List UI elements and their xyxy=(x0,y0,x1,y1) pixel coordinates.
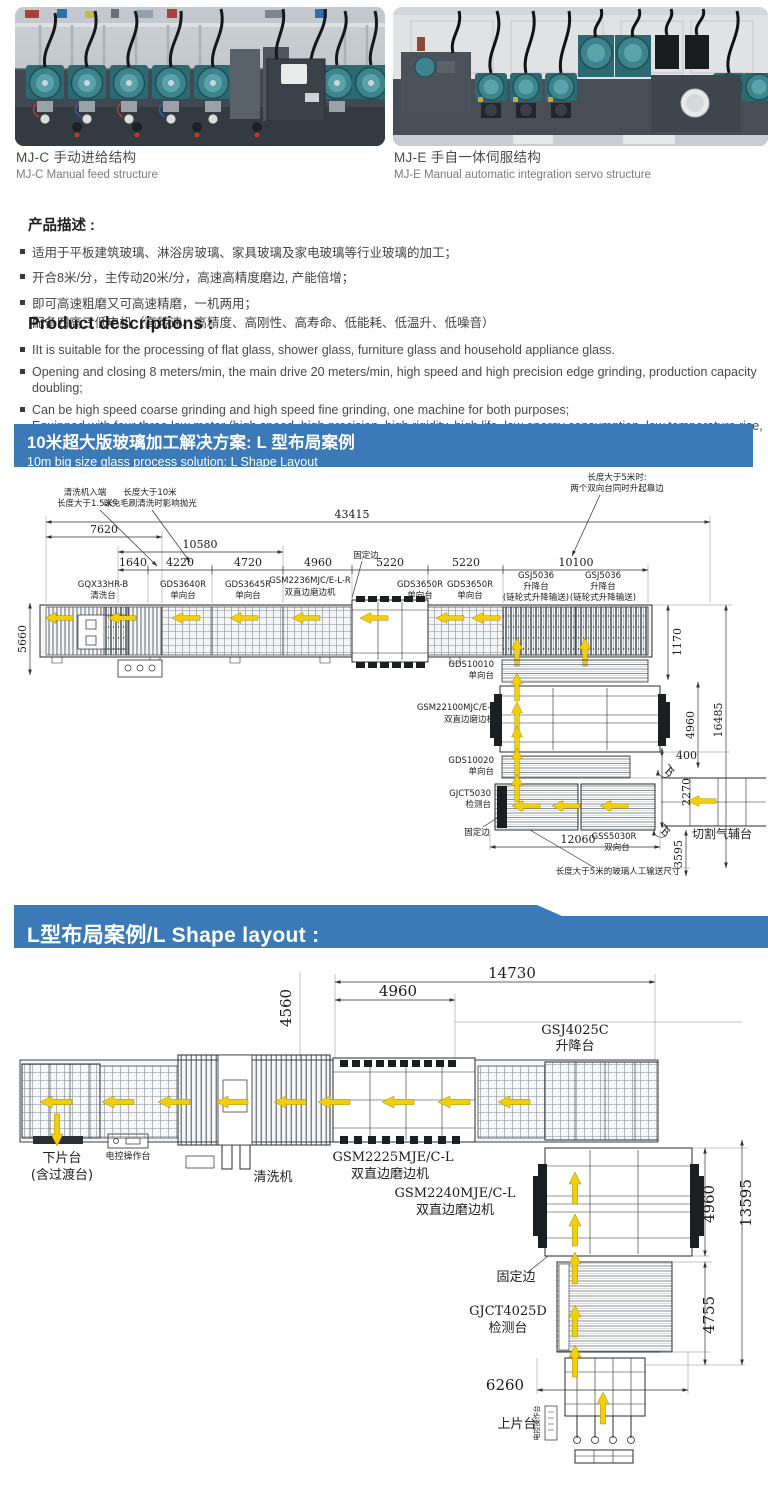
machine-name: 单向台 xyxy=(170,590,196,601)
description-zh-text: 即可高速粗磨又可高速精磨，一机两用； xyxy=(32,295,257,314)
dim-4560: 4560 xyxy=(277,989,295,1027)
banner1-title-zh: 10米超大版玻璃加工解决方案: L 型布局案例 xyxy=(27,424,753,453)
dim-seg: 5220 xyxy=(376,556,404,569)
dim-4960-right: 4960 xyxy=(700,1185,718,1223)
caption-mjc-zh: MJ-C 手动进给结构 xyxy=(16,151,158,165)
dim-12060: 12060 xyxy=(561,833,596,846)
machine-code: GSM2240MJE/C-L xyxy=(394,1186,515,1201)
right-branch: GSM2240MJE/C-L 双直边磨边机 固定边 GJCT4025D 检测台 … xyxy=(394,1140,755,1463)
caption-mje: MJ-E 手自一体伺服结构 MJ-E Manual automatic inte… xyxy=(394,151,651,181)
console-label: 电控操作台 xyxy=(532,1406,541,1441)
description-zh-item: 即可高速粗磨又可高速精磨，一机两用； xyxy=(20,295,760,314)
description-zh-item: 开合8米/分，主传动20米/分，高速高精度磨边, 产能倍增； xyxy=(20,269,760,288)
bullet-square xyxy=(20,274,25,279)
dim-total: 43415 xyxy=(335,508,370,521)
dim-4755: 4755 xyxy=(700,1296,718,1334)
machine-note: (链轮式升降输送) xyxy=(570,592,636,603)
caption-mjc-en: MJ-C Manual feed structure xyxy=(16,170,158,182)
bullet-square xyxy=(20,300,25,305)
banner1-title-en: 10m big size glass process solution: L S… xyxy=(27,455,753,469)
machine-name: 双直边磨边机 xyxy=(444,714,496,725)
dim-4960: 4960 xyxy=(684,711,697,739)
caption-mje-en: MJ-E Manual automatic integration servo … xyxy=(394,170,651,182)
callout-text: 固定边 xyxy=(496,1270,535,1285)
callout-length-5m: 长度大于5米时: 两个双向台同时升起靠边 xyxy=(570,472,664,556)
machine-name: 检测台 xyxy=(465,799,491,810)
bullet-square xyxy=(20,347,25,352)
machine-code: GSM2225MJE/C-L xyxy=(332,1150,453,1165)
catalog-page: MJ-C 手动进给结构 MJ-C Manual feed structure M… xyxy=(0,0,768,1507)
machine-name: 双向台 xyxy=(604,842,630,853)
dim-seg: 1640 xyxy=(119,556,147,569)
banner-10m-solution: 10米超大版玻璃加工解决方案: L 型布局案例 10m big size gla… xyxy=(14,424,753,467)
description-en-text: IIt is suitable for the processing of fl… xyxy=(32,342,615,358)
machine-photo-mjc-art xyxy=(15,7,385,146)
description-en-text: Opening and closing 8 meters/min, the ma… xyxy=(32,364,768,396)
dim-seg: 4720 xyxy=(234,556,262,569)
bullet-square xyxy=(20,249,25,254)
caption-mje-zh: MJ-E 手自一体伺服结构 xyxy=(394,151,651,165)
callout-text: 以免毛刷清洗时影响抛光 xyxy=(103,498,197,509)
machine-code: GSM2236MJC/E-L-R xyxy=(269,576,351,586)
callout-text: 长度大于10米 xyxy=(123,487,177,498)
machine-name: 上片台 xyxy=(497,1417,536,1432)
machine-name: (含过渡台) xyxy=(31,1167,93,1183)
machine-name: 升降台 xyxy=(523,581,549,592)
machine-code: GSJ4025C xyxy=(541,1023,609,1038)
cutting-table-label: 切割气辅台 xyxy=(692,826,752,841)
dim-4960-top: 4960 xyxy=(379,982,417,1000)
machine-name: 清洗机 xyxy=(253,1170,292,1185)
dim-1170: 1170 xyxy=(671,628,684,656)
callout-text: 固定边 xyxy=(464,827,490,838)
description-en-item: Opening and closing 8 meters/min, the ma… xyxy=(20,364,768,396)
dim-5660: 5660 xyxy=(16,625,29,653)
callout-text: 两个双向台同时升起靠边 xyxy=(570,483,664,494)
dim-3595: 3595 xyxy=(672,840,685,868)
dimension-lines: 14730 4960 4560 GSJ4025C 升降台 xyxy=(277,964,742,1060)
machine-code: GSM22100MJC/E-L xyxy=(417,703,495,713)
dim-14730: 14730 xyxy=(488,964,536,982)
machine-photo-mje xyxy=(393,7,768,146)
machine-code: GDS3640R xyxy=(160,580,206,590)
machine-code: GSJ5036 xyxy=(518,571,554,581)
machine-labels: 下片台 (含过渡台) 电控操作台 清洗机 GSM2225MJE/C-L 双直边磨… xyxy=(31,1150,454,1185)
description-zh-text: 适用于平板建筑玻璃、淋浴房玻璃、家具玻璃及家电玻璃等行业玻璃的加工； xyxy=(32,244,457,263)
machine-code: GDS3650R xyxy=(447,580,493,590)
banner2-title: L型布局案例/L Shape layout : xyxy=(14,905,768,949)
dim-13595: 13595 xyxy=(737,1179,755,1227)
machine-code: GSJ5036 xyxy=(585,571,621,581)
machine-name: 双直边磨边机 xyxy=(416,1203,494,1218)
machine-name: 检测台 xyxy=(488,1321,527,1336)
machine-name: 下片台 xyxy=(42,1151,81,1166)
dim-6260: 6260 xyxy=(486,1376,524,1394)
layout-diagram-lshape: 14730 4960 4560 GSJ4025C 升降台 xyxy=(0,960,768,1507)
description-zh-item: 适用于平板建筑玻璃、淋浴房玻璃、家具玻璃及家电玻璃等行业玻璃的加工； xyxy=(20,244,760,263)
dim-seg: 4960 xyxy=(304,556,332,569)
description-en-item: IIt is suitable for the processing of fl… xyxy=(20,342,768,358)
rotation-mark: E xyxy=(658,764,677,779)
machine-photo-mje-art xyxy=(393,7,768,146)
callout-text: 清洗机入端 xyxy=(64,487,107,498)
machine-name: 双直边磨边机 xyxy=(284,587,336,598)
machine-code: GDS3645R xyxy=(225,580,271,590)
machine-photo-mjc xyxy=(15,7,385,146)
dim-seg: 5220 xyxy=(452,556,480,569)
machine-code: GDS10010 xyxy=(448,660,494,670)
bullet-square xyxy=(20,369,25,374)
machine-code: GQX33HR-B xyxy=(78,580,129,590)
console-label: 电控操作台 xyxy=(105,1150,150,1162)
machine-name: 清洗台 xyxy=(90,590,116,601)
dim-7620: 7620 xyxy=(90,523,118,536)
machine-name: 单向台 xyxy=(235,590,261,601)
description-en-text: Can be high speed coarse grinding and hi… xyxy=(32,402,569,418)
layout-diagram-10m: 清洗机入端 长度大于1.5米 长度大于10米 以免毛刷清洗时影响抛光 长度大于5… xyxy=(0,470,768,898)
machine-code: GJCT5030 xyxy=(449,789,491,799)
machine-code: GJCT4025D xyxy=(469,1304,547,1319)
machine-name: 升降台 xyxy=(590,581,616,592)
dim-seg: 10100 xyxy=(559,556,594,569)
callout-text: 长度大于5米时: xyxy=(587,472,646,483)
description-en-heading: Product descriptions : xyxy=(28,313,768,334)
machine-note: (链轮式升降输送) xyxy=(503,592,569,603)
caption-mjc: MJ-C 手动进给结构 MJ-C Manual feed structure xyxy=(16,151,158,181)
description-zh-text: 开合8米/分，主传动20米/分，高速高精度磨边, 产能倍增； xyxy=(32,269,354,288)
machine-name: 单向台 xyxy=(457,590,483,601)
description-zh-heading: 产品描述 : xyxy=(28,214,760,235)
machine-code: GDS3650R xyxy=(397,580,443,590)
machine-name: 双直边磨边机 xyxy=(351,1167,429,1182)
machine-name: 升降台 xyxy=(555,1039,594,1054)
machine-code: GDS10020 xyxy=(448,756,494,766)
description-en-item: Can be high speed coarse grinding and hi… xyxy=(20,402,768,418)
machine-code: GSS5030R xyxy=(592,832,637,842)
machine-name: 单向台 xyxy=(468,670,494,681)
dim-seg: 4220 xyxy=(166,556,194,569)
banner-l-shape: L型布局案例/L Shape layout : xyxy=(14,905,768,948)
dim-2270: 2270 xyxy=(680,778,693,806)
dim-16485: 16485 xyxy=(712,703,725,738)
bullet-square xyxy=(20,407,25,412)
dim-10580: 10580 xyxy=(183,538,218,551)
callout-text: 长度大于5米的玻璃人工输送尺寸 xyxy=(556,866,681,877)
dim-400: 400 xyxy=(676,749,697,762)
machine-name: 单向台 xyxy=(468,766,494,777)
